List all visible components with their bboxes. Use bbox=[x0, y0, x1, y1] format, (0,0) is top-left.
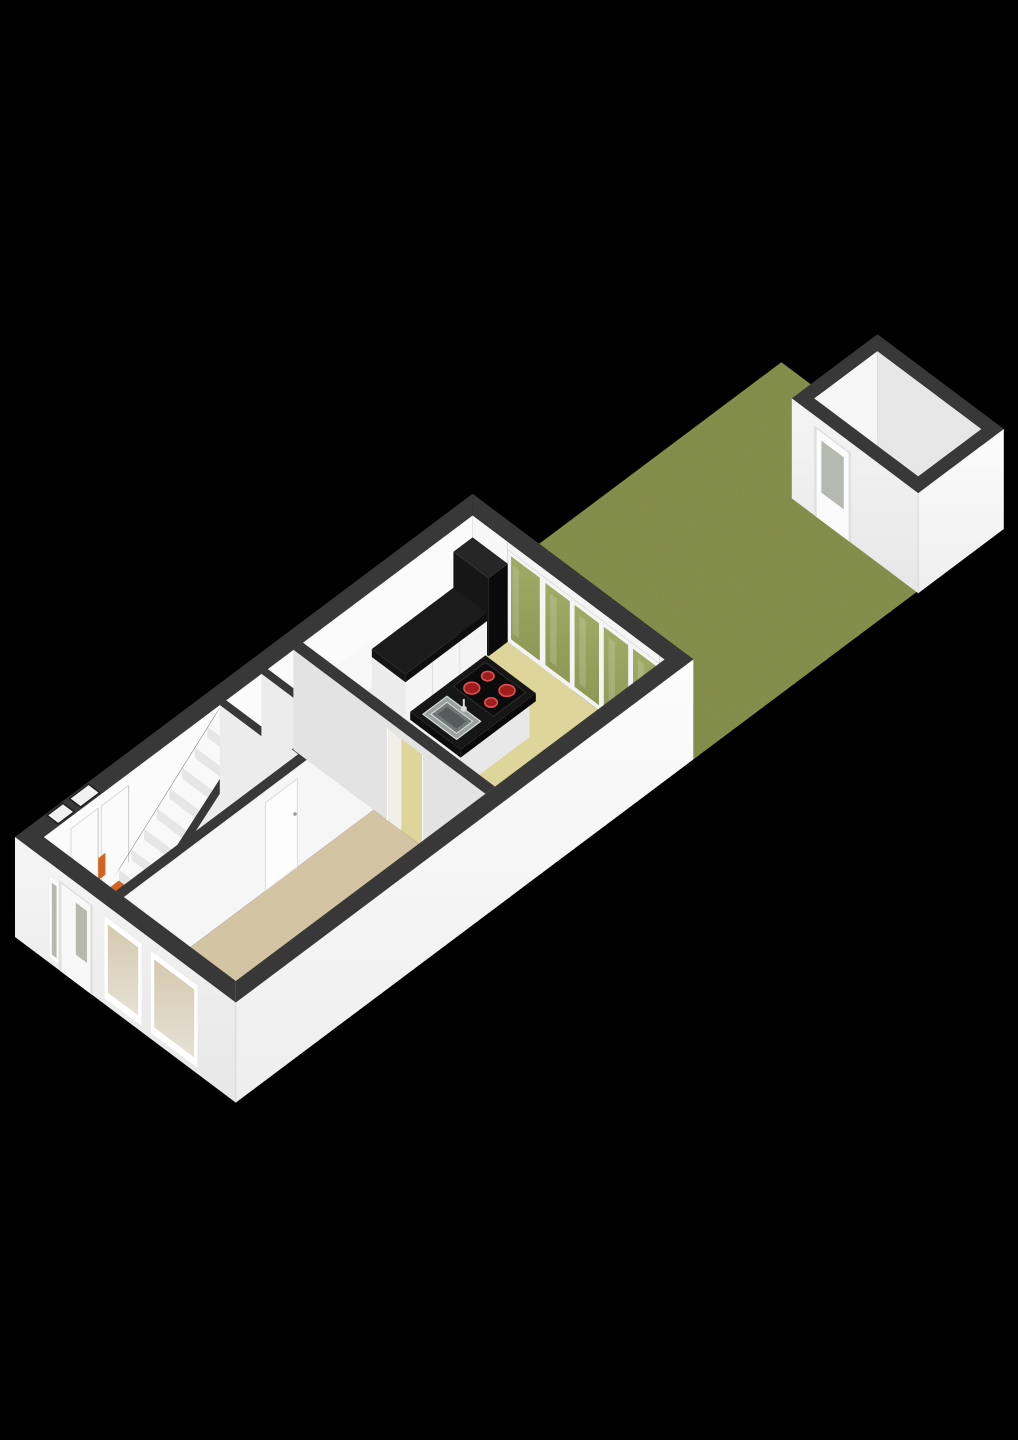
cooktop-burner bbox=[464, 682, 480, 694]
kitchen-doorway-leaf bbox=[387, 728, 401, 831]
back-door-glass-sheen bbox=[513, 565, 519, 638]
sliding-door-pane-sheen bbox=[579, 616, 585, 689]
cooktop-burner bbox=[485, 698, 497, 707]
floorplan-3d bbox=[0, 0, 1018, 1440]
cooktop-burner bbox=[499, 685, 515, 697]
front-sidelight-glass bbox=[52, 883, 57, 959]
door-handle bbox=[293, 812, 297, 816]
cooktop-burner bbox=[482, 671, 494, 680]
tall-cabinet-side bbox=[489, 564, 508, 656]
sliding-door-pane-sheen bbox=[550, 594, 556, 667]
floorplan-stage bbox=[0, 0, 1018, 1440]
front-door-glass bbox=[76, 903, 87, 963]
